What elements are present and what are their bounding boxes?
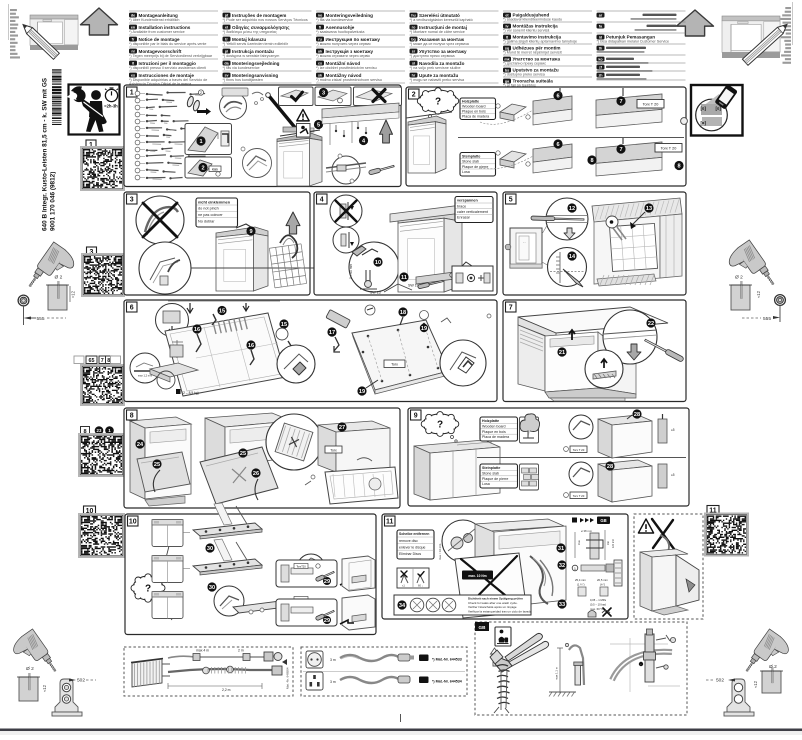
- svg-text:19: 19: [421, 326, 427, 332]
- svg-text:*) Mat.-Nr. 644533: *) Mat.-Nr. 644533: [432, 657, 462, 661]
- svg-text:9: 9: [249, 229, 252, 235]
- svg-text:Stone slab: Stone slab: [482, 471, 499, 475]
- svg-text:10: 10: [129, 519, 137, 526]
- svg-text:Torx: Torx: [391, 363, 398, 367]
- svg-text:*) Available from customer ser: *) Available from customer service: [129, 30, 185, 34]
- svg-text:?: ?: [435, 96, 441, 107]
- svg-text:Mat.-Nr. 646584: Mat.-Nr. 646584: [286, 667, 290, 689]
- svg-text:502: 502: [77, 677, 85, 683]
- svg-text:555: 555: [763, 316, 771, 322]
- svg-text:33: 33: [559, 602, 565, 608]
- svg-text:16: 16: [194, 327, 200, 333]
- svg-text:Holzplatte: Holzplatte: [482, 419, 499, 423]
- svg-text:*) доступно преко сервиса: *) доступно преко сервиса: [410, 54, 456, 58]
- svg-text:6: 6: [556, 94, 559, 100]
- svg-text:fi: fi: [319, 26, 321, 30]
- svg-text:*) disponibili presso il servi: *) disponibili presso il servizio assist…: [129, 66, 206, 70]
- svg-text:nicht einklemmen: nicht einklemmen: [198, 200, 231, 204]
- svg-text:en: en: [131, 26, 136, 30]
- svg-text:*) διαθέσιμο μέσω της υπηρεσία: *) διαθέσιμο μέσω της υπηρεσίας: [223, 30, 278, 34]
- svg-text:SW 13: SW 13: [370, 291, 381, 295]
- svg-text:*) finns hos kundtjänsten: *) finns hos kundtjänsten: [223, 78, 263, 82]
- svg-text:8: 8: [677, 164, 680, 170]
- svg-text:25: 25: [240, 451, 246, 457]
- svg-text:Placa de madera: Placa de madera: [482, 435, 509, 439]
- svg-text:29: 29: [324, 579, 330, 585]
- svg-text:24: 24: [137, 442, 144, 448]
- svg-text:verspannen: verspannen: [457, 199, 478, 203]
- svg-text:0 – 60 mm: 0 – 60 mm: [349, 264, 353, 279]
- svg-text:Steinplatte: Steinplatte: [462, 154, 480, 158]
- svg-text:≈12: ≈12: [42, 684, 47, 692]
- svg-text:≈12: ≈12: [71, 290, 76, 298]
- svg-text:*) disponible par le biais du: *) disponible par le biais du service ap…: [129, 42, 206, 46]
- svg-text:Holzplatte: Holzplatte: [462, 100, 479, 104]
- svg-text:3 m: 3 m: [330, 658, 336, 662]
- svg-text:*) dostupno preko servisa: *) dostupno preko servisa: [503, 73, 546, 77]
- svg-text:*) saatavana huoltopalvelusta: *) saatavana huoltopalvelusta: [316, 30, 365, 34]
- svg-text:7: 7: [619, 147, 622, 153]
- svg-text:3 m: 3 m: [330, 680, 336, 684]
- svg-text:Plaque de pierre: Plaque de pierre: [462, 165, 488, 169]
- svg-text:11: 11: [386, 519, 394, 526]
- svg-text:?: ?: [437, 419, 443, 430]
- svg-text:sr: sr: [412, 50, 416, 54]
- svg-text:[¤]: [¤]: [716, 106, 722, 111]
- svg-text:caler verticalement: caler verticalement: [457, 210, 488, 214]
- svg-text:1: 1: [108, 428, 111, 433]
- svg-text:*) Pode ser adquirido nos noss: *) Pode ser adquirido nos nossos Serviço…: [223, 18, 308, 22]
- svg-text:*) možno získať prostredníctvo: *) možno získať prostredníctvom servisu: [316, 78, 382, 82]
- svg-text:10: 10: [375, 260, 381, 266]
- svg-text:*) Tegen meerprijs bij de Serv: *) Tegen meerprijs bij de Servicedienst …: [129, 54, 213, 58]
- svg-text:Eliminar Discs: Eliminar Discs: [399, 552, 421, 556]
- svg-text:Losa: Losa: [462, 170, 470, 174]
- svg-text:Scheibe entfernen: Scheibe entfernen: [399, 532, 429, 536]
- svg-text:sl: sl: [412, 62, 415, 66]
- svg-text:*) bisa didapatkan melalui Cus: *) bisa didapatkan melalui Customer Serv…: [597, 40, 670, 44]
- svg-text:28: 28: [634, 412, 640, 418]
- svg-text:30: 30: [209, 585, 215, 591]
- svg-text:Ø 2: Ø 2: [735, 275, 743, 281]
- svg-text:Losa: Losa: [482, 482, 490, 486]
- svg-text:cs: cs: [318, 62, 322, 66]
- svg-text:31: 31: [558, 546, 564, 552]
- svg-text:*) fås via kundeservice: *) fås via kundeservice: [223, 66, 260, 70]
- svg-text:11: 11: [401, 275, 407, 281]
- svg-text:*) fås via kundeservice: *) fås via kundeservice: [316, 18, 353, 22]
- svg-text:60 ↓: 60 ↓: [418, 584, 423, 588]
- svg-text:hr: hr: [412, 74, 416, 78]
- svg-text:Wooden board: Wooden board: [462, 105, 486, 109]
- svg-text:15: 15: [219, 309, 225, 315]
- svg-text:hu: hu: [411, 14, 416, 18]
- svg-text:640 B Integr. Kusto-Leisten 81: 640 B Integr. Kusto-Leisten 81,5 cm - k.…: [42, 77, 49, 231]
- svg-text:Plaque en bois: Plaque en bois: [482, 430, 506, 434]
- svg-text:*) lze obdržet prostřednictvím: *) lze obdržet prostřednictvím servisu: [316, 66, 377, 70]
- svg-text:9: 9: [414, 413, 418, 420]
- svg-text:(0,5 – 10 bar): (0,5 – 10 bar): [590, 603, 606, 607]
- svg-text:max 4 m: max 4 m: [196, 649, 209, 653]
- svg-text:max 1,1 m: max 1,1 m: [555, 666, 559, 680]
- svg-text:5: 5: [509, 197, 513, 204]
- svg-text:9001 170 046 (9812): 9001 170 046 (9812): [50, 172, 57, 231]
- svg-text:No doblar: No doblar: [198, 219, 215, 223]
- svg-text:*) galima įsigyti klientų apta: *) galima įsigyti klientų aptarnavimo ta…: [503, 40, 577, 44]
- svg-text:≤5: ≤5: [671, 428, 675, 432]
- svg-text:ne pas coincer: ne pas coincer: [198, 213, 223, 217]
- svg-text:*) var saņemt klientu servisā: *) var saņemt klientu servisā: [503, 29, 550, 33]
- svg-text:*) saadaval klienditeeninduse: *) saadaval klienditeeninduse kaudu: [503, 18, 562, 22]
- svg-text:34: 34: [399, 603, 406, 609]
- svg-text:12: 12: [569, 206, 575, 212]
- svg-text:16: 16: [248, 343, 254, 349]
- svg-text:120 mm: 120 mm: [612, 539, 615, 548]
- svg-text:GB: GB: [600, 518, 606, 523]
- svg-text:3: 3: [322, 91, 325, 97]
- svg-text:*) Mund të merret nëpërmjet se: *) Mund të merret nëpërmjet servisit: [503, 51, 562, 55]
- svg-text:·: ·: [641, 662, 642, 666]
- svg-text:(2 – 8,5 kg): (2 – 8,5 kg): [182, 391, 199, 395]
- svg-text:Torx T 20: Torx T 20: [643, 103, 659, 107]
- svg-text:do not pinch: do not pinch: [198, 207, 219, 211]
- svg-text:2 m: 2 m: [238, 649, 244, 653]
- svg-text:Stone slab: Stone slab: [462, 160, 479, 164]
- svg-text:1: 1: [199, 139, 202, 145]
- svg-text:klak: klak: [212, 167, 218, 171]
- svg-text:7: 7: [509, 305, 513, 312]
- svg-text:min: min: [607, 540, 610, 545]
- svg-text:20,5 mm: 20,5 mm: [597, 578, 609, 582]
- svg-text:8: 8: [590, 158, 593, 164]
- svg-text:14: 14: [569, 254, 576, 260]
- svg-text:*) можна отримати через сервіс: *) можна отримати через сервіс: [316, 54, 370, 58]
- svg-text:enlever le disque: enlever le disque: [399, 545, 426, 549]
- svg-text:(¾″): (¾″): [600, 583, 605, 587]
- svg-text:··: ··: [523, 240, 526, 245]
- svg-text:[¤]: [¤]: [701, 106, 707, 111]
- svg-text:≈12: ≈12: [756, 290, 761, 298]
- svg-text:es: es: [131, 74, 135, 78]
- svg-text:6: 6: [130, 305, 134, 312]
- svg-text:*) Yetkili servis üzerinden te: *) Yetkili servis üzerinden temin edileb…: [223, 42, 289, 46]
- svg-text:30: 30: [207, 546, 213, 552]
- svg-text:6: 6: [556, 142, 559, 148]
- svg-text:brace: brace: [457, 204, 466, 208]
- svg-text:*) mogu se nabaviti preko serv: *) mogu se nabaviti preko servisa: [410, 78, 465, 82]
- svg-text:15: 15: [281, 322, 287, 328]
- svg-text:4: 4: [320, 197, 324, 204]
- svg-text:Steinplatte: Steinplatte: [482, 466, 500, 470]
- svg-text:TorxT20: TorxT20: [296, 565, 306, 569]
- svg-text:502: 502: [716, 677, 724, 683]
- svg-text:32: 32: [559, 563, 565, 569]
- svg-text:(1 ¼″): (1 ¼″): [577, 583, 585, 587]
- svg-text:*) dostępna w serwisie fabrycz: *) dostępna w serwisie fabrycznym: [223, 54, 280, 58]
- svg-text:?: ?: [145, 583, 151, 594]
- svg-text:ar: ar: [599, 14, 603, 18]
- svg-text:*) na voljo prek servisne služ: *) na voljo prek servisne službe: [410, 66, 461, 70]
- svg-text:Placa de madera: Placa de madera: [462, 115, 489, 119]
- svg-text:Torx: Torx: [330, 448, 337, 452]
- svg-text:GB: GB: [479, 625, 487, 630]
- svg-text:25,4 mm: 25,4 mm: [575, 578, 587, 582]
- svg-text:*) Mat.-Nr. 644534: *) Mat.-Nr. 644534: [432, 679, 462, 683]
- svg-text:Plaque en bois: Plaque en bois: [462, 110, 486, 114]
- svg-text:max: max: [578, 540, 581, 545]
- svg-text:*) достапно преку сервис: *) достапно преку сервис: [503, 62, 546, 66]
- svg-text:ø 38 mm: ø 38 mm: [581, 529, 593, 533]
- svg-text:1: 1: [574, 567, 576, 571]
- svg-text:18: 18: [400, 310, 406, 316]
- svg-text:7: 7: [619, 99, 622, 105]
- svg-text:bg: bg: [411, 38, 416, 42]
- svg-text:Ø 2: Ø 2: [26, 666, 34, 672]
- svg-text:≈12: ≈12: [753, 680, 758, 688]
- svg-text:[¤]: [¤]: [701, 121, 707, 126]
- svg-text:21: 21: [559, 350, 565, 356]
- svg-text:pl: pl: [225, 50, 228, 54]
- svg-text:≤5: ≤5: [671, 473, 675, 477]
- svg-text:nl: nl: [131, 50, 134, 54]
- svg-text:28: 28: [607, 464, 613, 470]
- svg-text:27: 27: [339, 425, 345, 431]
- svg-text:26: 26: [253, 471, 259, 477]
- svg-text:8: 8: [107, 358, 110, 364]
- svg-text:1: 1: [130, 90, 134, 97]
- svg-text:Wooden board: Wooden board: [482, 424, 506, 428]
- svg-text:Enrasar: Enrasar: [457, 216, 471, 220]
- svg-text:ko: ko: [598, 58, 603, 62]
- svg-text:Torx T 20: Torx T 20: [661, 147, 677, 151]
- svg-text:max ≈ 10 mm: max ≈ 10 mm: [438, 543, 442, 560]
- svg-text:Plaque de pierre: Plaque de pierre: [482, 477, 508, 481]
- svg-text:25: 25: [154, 462, 160, 468]
- svg-text:7: 7: [101, 358, 104, 364]
- svg-text:*) може да се получи чрез серв: *) може да се получи чрез сервиза: [410, 42, 470, 46]
- svg-text:2,2 m: 2,2 m: [222, 688, 231, 692]
- svg-text:Verificar la estanqueidad tras: Verificar la estanqueidad tras un ciclo …: [468, 610, 532, 614]
- svg-text:22: 22: [648, 321, 654, 327]
- svg-text:13: 13: [646, 206, 652, 212]
- svg-text:29: 29: [324, 618, 330, 624]
- svg-text:0,05 – 1 MPa: 0,05 – 1 MPa: [590, 598, 606, 602]
- svg-text:555: 555: [37, 316, 45, 322]
- svg-text:65: 65: [89, 358, 95, 364]
- svg-text:2: 2: [201, 166, 204, 172]
- svg-text:19: 19: [359, 389, 365, 395]
- svg-text:Ø 2: Ø 2: [55, 275, 63, 281]
- svg-text:8: 8: [130, 413, 134, 420]
- svg-text:de: de: [131, 14, 135, 18]
- svg-text:3: 3: [130, 197, 134, 204]
- svg-text:2: 2: [412, 92, 416, 99]
- svg-text:*) можно получить через сервис: *) можно получить через сервис: [316, 42, 371, 46]
- svg-text:23: 23: [97, 428, 102, 433]
- svg-text:5: 5: [317, 123, 320, 129]
- svg-text:17: 17: [329, 330, 335, 336]
- svg-text:el: el: [225, 26, 228, 30]
- svg-text:Torx T 20: Torx T 20: [573, 494, 585, 498]
- svg-text:remove disc: remove disc: [399, 539, 418, 543]
- svg-text:≈2h-3h: ≈2h-3h: [104, 104, 118, 109]
- svg-text:no: no: [318, 14, 323, 18]
- svg-text:*) über Kundendienst erhältlic: *) über Kundendienst erhältlich: [129, 18, 179, 22]
- svg-text:*) Montare numai de către serv: *) Montare numai de către service: [410, 30, 465, 34]
- svg-text:Torx T 20: Torx T 20: [573, 448, 585, 452]
- svg-text:max. 10 Nm: max. 10 Nm: [468, 574, 486, 578]
- svg-text:*) a vevőszolgálaton keresztül: *) a vevőszolgálaton keresztül kapható: [410, 18, 473, 22]
